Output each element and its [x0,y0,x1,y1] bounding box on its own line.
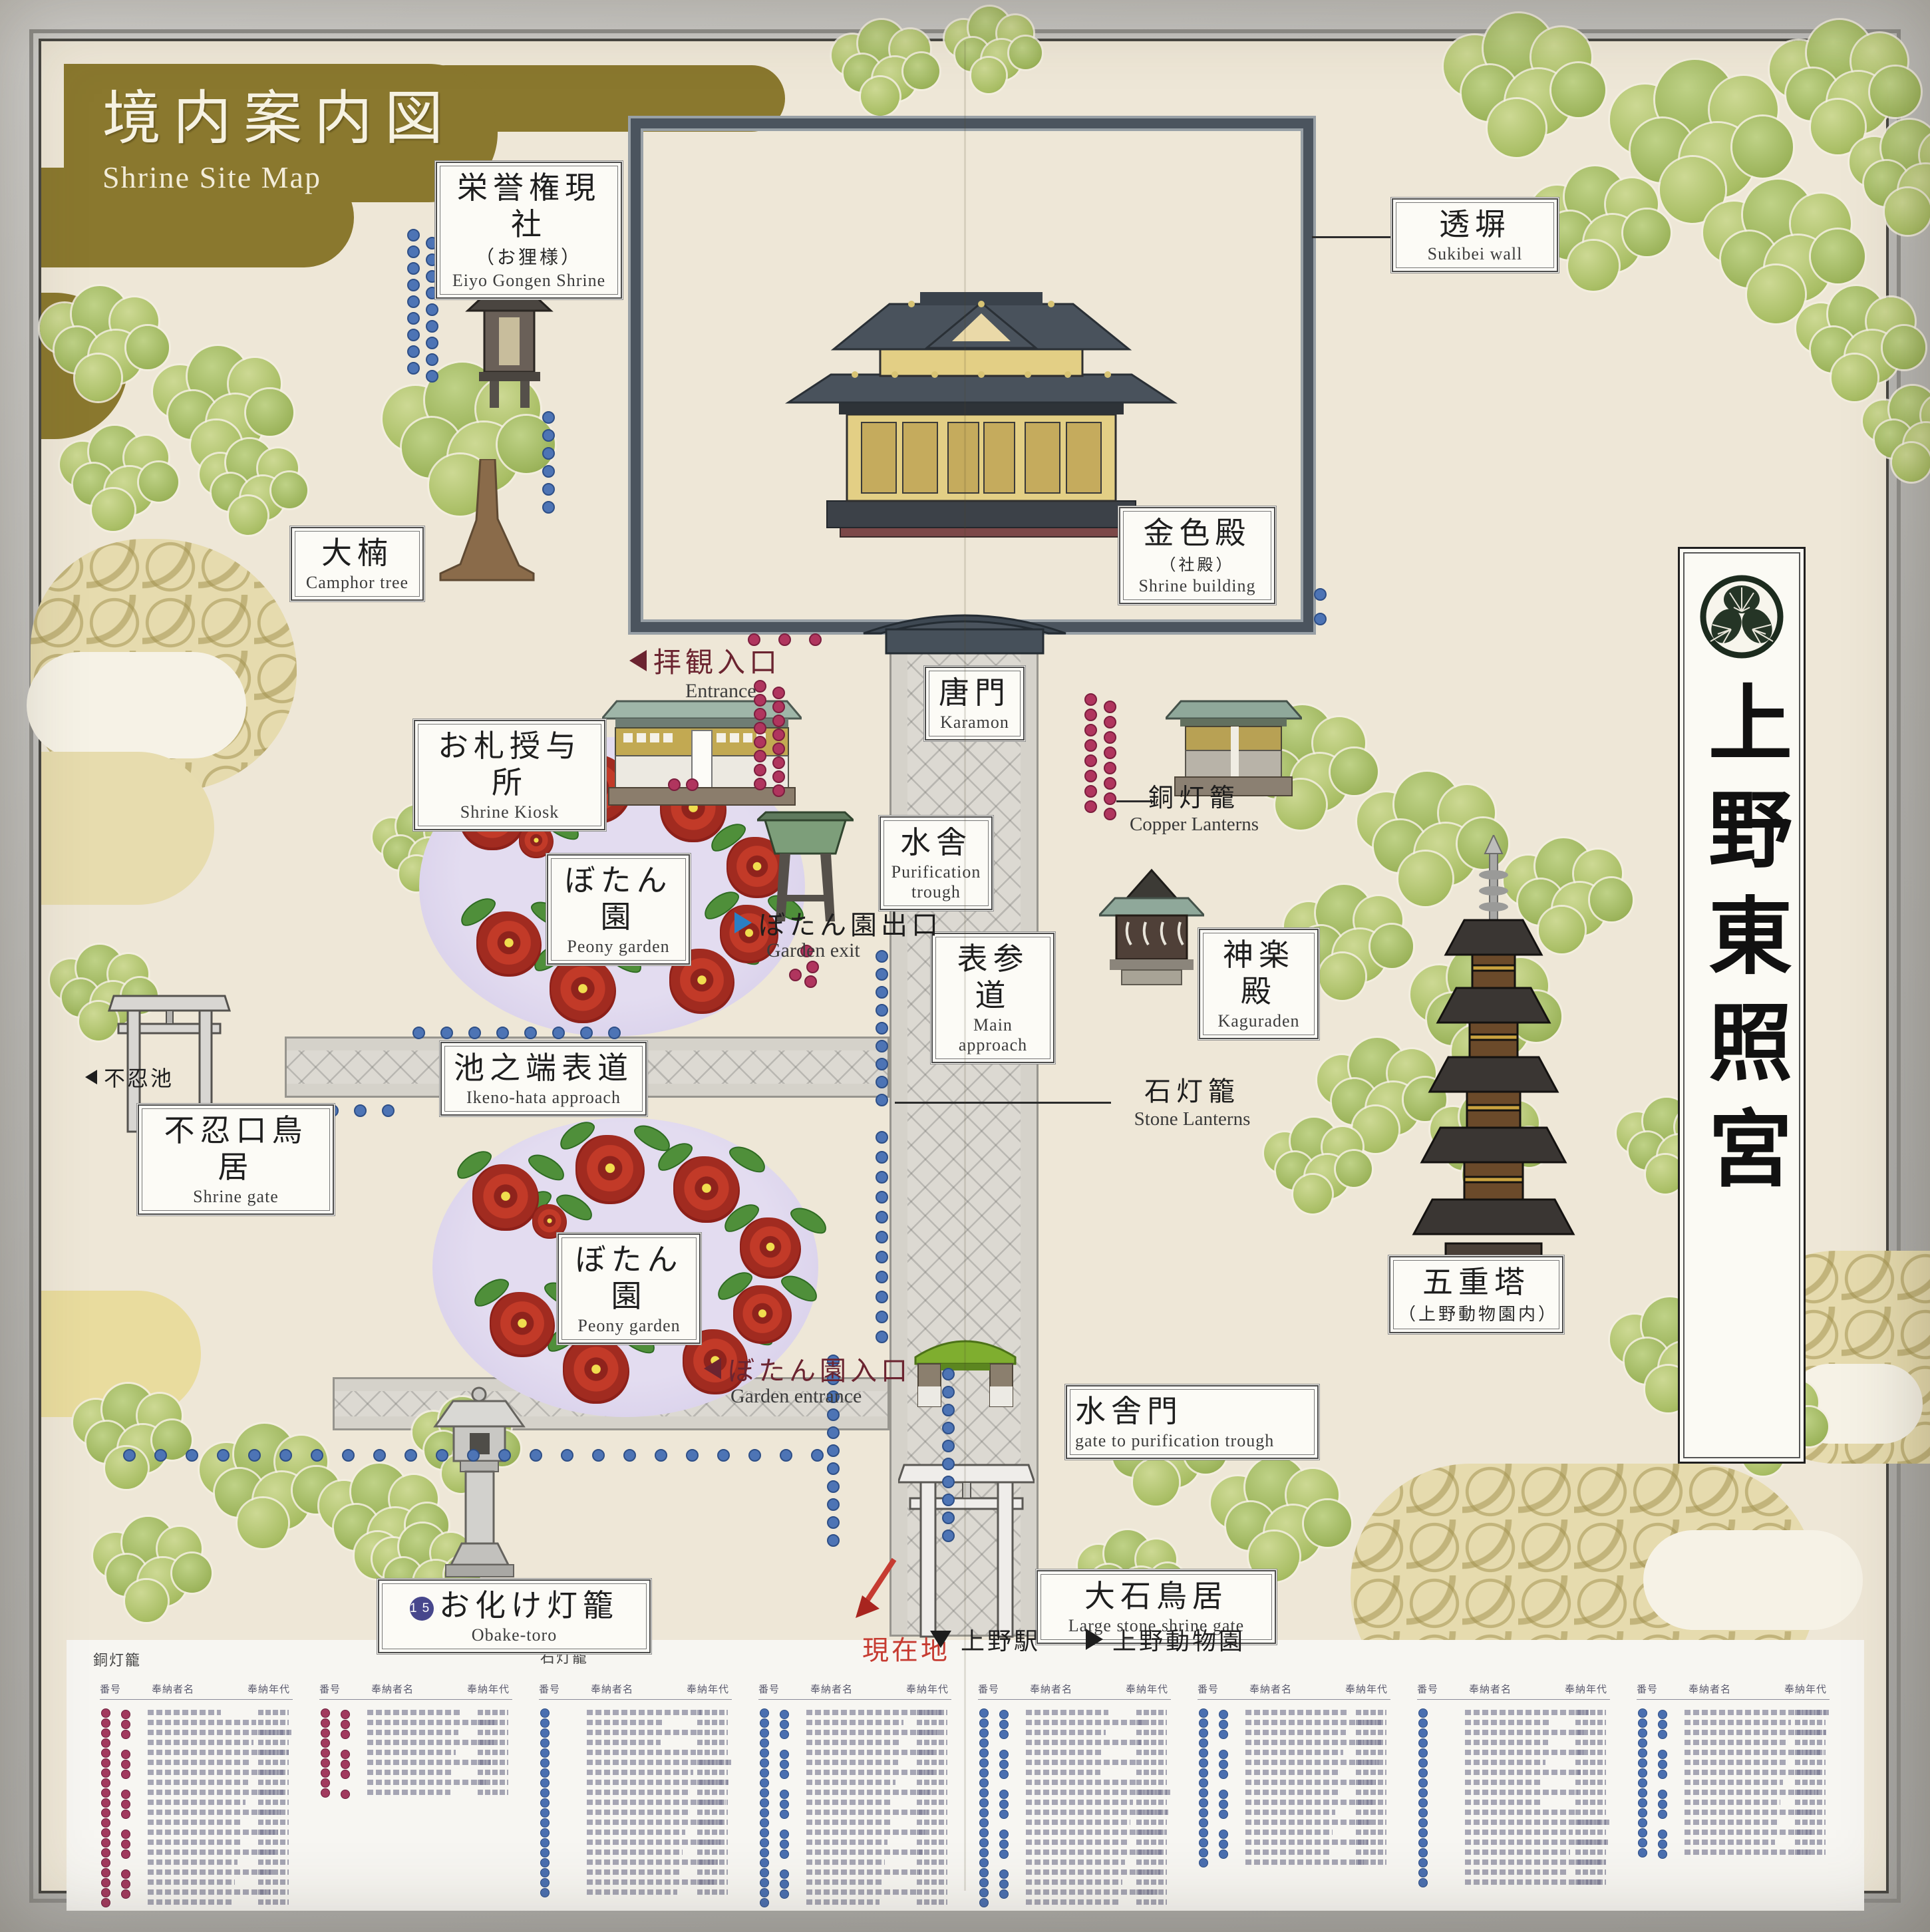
stone-lantern-dot [1314,588,1327,601]
stone-lantern-dot [876,1022,888,1035]
legend-dot [1199,1708,1208,1718]
map-title-banner: 境内案内図 Shrine Site Map [64,64,498,202]
legend-donor-name [806,1850,923,1855]
legend-donor-name [148,1780,248,1785]
tree-icon [1885,188,1930,235]
legend-dot [979,1708,989,1718]
copper-lantern-dot [668,778,681,791]
stone-lantern-dot [407,312,420,325]
legend-dot [1219,1790,1228,1799]
stone-lantern-dot [623,1449,636,1462]
legend-dot [101,1728,110,1738]
tree-icon [971,58,1006,92]
tree-icon [1811,230,1865,283]
legend-donor-name [1685,1840,1775,1845]
legend-donor-era [258,1889,289,1895]
legend-donor-era [697,1750,728,1755]
legend-dot [979,1838,989,1848]
legend-dot [1418,1858,1428,1867]
legend-dot [121,1710,130,1719]
legend-donor-era [917,1850,947,1855]
stone-lantern-dot [827,1534,840,1547]
legend-donor-era [478,1740,508,1745]
legend-donor-name [1245,1710,1349,1715]
legend-donor-era [1795,1770,1826,1775]
stone-lantern-dot [373,1449,386,1462]
stone-lantern-dot [876,1331,888,1343]
legend-donor-era [697,1730,728,1735]
garden-entrance-marker-en: Garden entrance [730,1385,862,1408]
legend-dot [1199,1748,1208,1758]
arrow-left-icon [629,650,647,671]
arrow-left-icon [704,1358,721,1379]
copper-lantern-dot [1084,770,1097,782]
stone-lantern-dot [407,262,420,275]
stone-lantern-dot [382,1104,395,1117]
legend-dot [999,1790,1009,1799]
legend-donor-era [697,1780,728,1785]
legend-dot [1658,1750,1667,1759]
legend-header-name: 奉納者名 [810,1682,853,1696]
legend-dot [121,1750,130,1759]
legend-donor-era [258,1810,289,1815]
stone-lantern-dot [426,337,438,349]
legend-dot [760,1708,769,1718]
legend-dot [540,1888,550,1897]
legend-donor-name [1465,1730,1586,1735]
legend-donor-name [587,1889,677,1895]
stone-lantern-dot [530,1449,542,1462]
copper-lantern-dot [1104,762,1116,774]
legend-header-no: 番号 [100,1682,121,1696]
legend-donor-name [1465,1710,1589,1715]
legend-donor-era [1575,1859,1606,1865]
label-trough: 水舎 Purification trough [880,816,993,910]
legend-donor-era [697,1830,728,1835]
tree-icon [126,326,170,369]
legend-donor-era [1136,1790,1167,1795]
legend-dot [999,1810,1009,1819]
legend-donor-name [806,1869,920,1875]
copper-lantern-dot [754,708,766,721]
legend-dot [999,1760,1009,1769]
legend-dot [1418,1798,1428,1808]
legend-donor-era [1575,1740,1606,1745]
label-kiosk: お札授与所 Shrine Kiosk [414,720,605,830]
legend-dot [760,1788,769,1798]
legend-dot [121,1869,130,1879]
copper-lantern-dot [1104,716,1116,728]
stone-lantern-dot [407,345,420,358]
legend-dot [999,1850,1009,1859]
legend-dot [1199,1778,1208,1788]
legend-donor-era [478,1780,508,1785]
stone-lantern-dot [942,1494,955,1506]
copper-lantern-dot [772,784,785,797]
legend-dot [1199,1818,1208,1828]
legend-donor-era [1795,1760,1826,1765]
tree-icon [125,1580,168,1623]
label-peony-upper: ぼたん園 Peony garden [547,854,690,965]
legend-dot [999,1710,1009,1719]
legend-dot [101,1748,110,1758]
legend-dot [780,1810,789,1819]
legend-donor-name [1026,1780,1136,1785]
legend-donor-era [1356,1850,1386,1855]
legend-dot [321,1788,330,1798]
legend-dot [979,1868,989,1877]
legend-dot [540,1768,550,1778]
legend-dot [1418,1748,1428,1758]
stone-lantern-dot [827,1480,840,1493]
legend-header-name: 奉納者名 [371,1682,414,1696]
legend-dot [999,1879,1009,1889]
stone-lantern-dot [876,1171,888,1184]
copper-lantern-dot [1084,724,1097,736]
legend-donor-name [1465,1869,1567,1875]
tree-icon [1623,210,1670,256]
legend-donor-name [1465,1810,1575,1815]
legend-header-no: 番号 [539,1682,560,1696]
legend-dot [540,1818,550,1828]
legend-dot [979,1768,989,1778]
legend-dot [101,1878,110,1887]
legend-donor-era [1575,1760,1606,1765]
legend-dot [1418,1758,1428,1768]
tree-icon [861,77,899,116]
legend-donor-era [258,1850,289,1855]
legend-dot [1638,1778,1647,1788]
stone-lantern-dot [686,1449,699,1462]
legend-donor-era [1575,1850,1606,1855]
legend-donor-name [1245,1810,1335,1815]
stone-lantern-dot [942,1386,955,1398]
legend-donor-era [1795,1850,1826,1855]
tree-icon [1133,1459,1180,1506]
label-camphor: 大楠 Camphor tree [291,527,424,601]
legend-dot [121,1830,130,1839]
stone-lantern-dot [186,1449,198,1462]
legend-header-no: 番号 [319,1682,341,1696]
camphor-tree-trunk [434,459,540,582]
legend-dot [321,1728,330,1738]
legend-donor-era [1575,1820,1606,1825]
legend-dot [341,1720,350,1729]
label-kaguraden: 神楽殿 Kaguraden [1199,929,1319,1039]
legend-dot [760,1748,769,1758]
legend-dot [1638,1828,1647,1838]
legend-donor-era [917,1869,947,1875]
legend-donor-era [1575,1790,1606,1795]
legend-donor-name [806,1820,890,1825]
legend-header-rule [1637,1699,1830,1700]
legend-dot [101,1868,110,1877]
copper-lantern-dot [1104,808,1116,820]
legend-donor-era [258,1780,289,1785]
legend-donor-era [697,1820,728,1825]
legend-dot [1658,1830,1667,1839]
stone-lantern-dot [552,1027,565,1039]
legend-donor-era [1795,1830,1826,1835]
legend-dot [540,1798,550,1808]
copper-lantern-dot [686,778,699,791]
legend-header-era: 奉納年代 [247,1682,290,1696]
legend-donor-name [1465,1790,1578,1795]
stone-lantern-dot [748,1449,761,1462]
legend-dot [999,1750,1009,1759]
legend-header-name: 奉納者名 [591,1682,633,1696]
legend-dot [1199,1848,1208,1857]
legend-donor-name [1245,1730,1346,1735]
legend-donor-era [1575,1810,1606,1815]
legend-dot [101,1888,110,1897]
stone-lantern-dot [524,1027,537,1039]
legend-dot [1219,1800,1228,1809]
legend-donor-name [367,1730,458,1735]
tree-icon [75,355,122,401]
legend-dot [1658,1810,1667,1819]
legend-donor-name [1465,1830,1573,1835]
legend-dot [540,1778,550,1788]
tree-icon [92,489,134,532]
legend-header-no: 番号 [978,1682,999,1696]
stone-lantern-dot [827,1462,840,1475]
legend-dot [101,1738,110,1748]
legend-donor-era [258,1840,289,1845]
stone-lantern-dot [592,1449,605,1462]
legend-dot [101,1768,110,1778]
legend-dot [780,1730,789,1739]
legend-donor-era [258,1740,289,1745]
legend-donor-era [917,1889,947,1895]
legend-donor-era [1795,1750,1826,1755]
legend-donor-name [367,1740,494,1745]
legend-donor-era [1356,1820,1386,1825]
tree-icon [1331,748,1377,795]
legend-donor-era [917,1800,947,1805]
stone-lantern-dot [655,1449,667,1462]
stone-lantern-dot [876,1291,888,1303]
legend-donor-era [917,1899,947,1905]
legend-donor-name [1026,1750,1103,1755]
legend-dot [1199,1738,1208,1748]
stone-lantern-dot [279,1449,292,1462]
legend-dot [760,1798,769,1808]
stone-lantern-dot [876,1231,888,1243]
tree-icon [1568,241,1618,291]
stone-lantern-dot [407,362,420,375]
copper-lantern-dot [754,750,766,762]
tree-icon [1370,925,1414,968]
legend-dot [1219,1830,1228,1839]
copper-lantern-dot [754,764,766,776]
copper-lantern-dot [754,736,766,748]
tree-icon [1293,1175,1332,1213]
peony-flower-icon [733,1285,792,1344]
shrine-kiosk-icon [602,691,802,816]
legend-donor-name [1465,1740,1548,1745]
legend-dot [1638,1738,1647,1748]
legend-donor-era [917,1830,947,1835]
map-title-jp: 境内案内図 [102,71,498,156]
legend-donor-era [478,1730,508,1735]
legend-donor-name [1026,1899,1120,1905]
legend-dot [1658,1760,1667,1769]
stone-lantern-dot [407,295,420,308]
legend-dot [1638,1718,1647,1728]
legend-dot [979,1798,989,1808]
legend-dot [780,1710,789,1719]
legend-dot [760,1868,769,1877]
legend-dot [780,1720,789,1729]
legend-dot [1199,1768,1208,1778]
stone-lantern-dot [542,465,555,478]
legend-dot [101,1708,110,1718]
legend-donor-name [806,1800,893,1805]
copper-lantern-dot [754,778,766,790]
legend-donor-era [917,1730,947,1735]
legend-dot [780,1800,789,1809]
legend-dot [999,1720,1009,1729]
legend-dot [979,1788,989,1798]
legend-donor-era [697,1859,728,1865]
stone-lantern-dot [876,1311,888,1323]
shrine-site-map-sign: 境内案内図 Shrine Site Map [0,0,1930,1932]
legend-donor-name [1026,1820,1130,1825]
legend-dot [1219,1730,1228,1739]
copper-lantern-dot [1104,701,1116,713]
legend-donor-name [1245,1750,1343,1755]
stone-lantern-dot [580,1027,593,1039]
stone-lantern-dot [354,1104,367,1117]
legend-donor-era [1356,1790,1386,1795]
stone-lantern-dot [876,1131,888,1144]
legend-donor-era [258,1760,289,1765]
garden-entrance-marker: ぼたん園入口 [704,1349,911,1388]
legend-dot [321,1718,330,1728]
legend-dot [999,1840,1009,1849]
legend-header-no: 番号 [1417,1682,1438,1696]
legend-dot [540,1788,550,1798]
legend-dot [1638,1838,1647,1848]
stone-lantern-dot [942,1458,955,1470]
label-ikenohata: 池之端表道 Ikeno-hata approach [440,1042,647,1116]
large-stone-torii-icon [898,1456,1035,1639]
legend-donor-name [148,1760,251,1765]
legend-dot [1638,1808,1647,1818]
legend-donor-name [148,1720,256,1725]
legend-dot [540,1708,550,1718]
legend-donor-era [478,1760,508,1765]
legend-donor-era [1795,1710,1826,1715]
legend-dot [121,1770,130,1779]
legend-dot [101,1848,110,1857]
legend-dot [979,1858,989,1867]
legend-dot [760,1898,769,1907]
legend-dot [1658,1800,1667,1809]
legend-donor-name [1465,1850,1570,1855]
legend-donor-era [697,1810,728,1815]
legend-dot [1219,1850,1228,1859]
legend-donor-name [1026,1760,1138,1765]
legend-donor-era [1575,1750,1606,1755]
legend-donor-era [1136,1750,1167,1755]
legend-donor-era [1356,1810,1386,1815]
legend-dot [1658,1770,1667,1779]
legend-dot [321,1738,330,1748]
stone-lantern-dot [811,1449,824,1462]
legend-donor-name [1465,1760,1545,1765]
legend-donor-era [258,1859,289,1865]
legend-donor-name [1685,1800,1780,1805]
legend-dot [101,1778,110,1788]
stone-lantern-dot [942,1368,955,1380]
stone-lantern-dot [407,329,420,341]
arrow-left-icon [85,1070,97,1084]
legend-dot [101,1718,110,1728]
stone-lantern-dot [407,279,420,291]
legend-donor-era [697,1850,728,1855]
tree-icon [1832,355,1878,401]
legend-dot [760,1858,769,1867]
legend-dot [121,1879,130,1889]
legend-dot [780,1850,789,1859]
legend-header-rule [539,1699,732,1700]
legend-donor-name [367,1760,491,1765]
legend-donor-era [258,1730,289,1735]
tree-icon [1551,63,1605,117]
legend-donor-era [258,1720,289,1725]
legend-dot [101,1808,110,1818]
legend-donor-era [1136,1869,1167,1875]
legend-donor-era [1136,1800,1167,1805]
stone-lantern-dot [876,1251,888,1263]
legend-dot [1418,1848,1428,1857]
legend-dot [979,1848,989,1857]
legend-dot [1638,1768,1647,1778]
legend-dot [341,1710,350,1719]
legend-dot [121,1760,130,1769]
stone-lantern-dot [217,1449,230,1462]
shrine-building-illustration [762,203,1201,549]
legend-donor-name [1685,1740,1788,1745]
stone-lantern-dot [542,483,555,496]
legend-dot [101,1898,110,1907]
legend-donor-era [1356,1750,1386,1755]
legend-donor-era [697,1770,728,1775]
legend-donor-era [697,1760,728,1765]
legend-donor-era [917,1859,947,1865]
stone-lantern-dot [942,1529,955,1542]
legend-header-name: 奉納者名 [1249,1682,1292,1696]
legend-donor-era [1136,1760,1167,1765]
legend-donor-era [258,1800,289,1805]
legend-dot [979,1728,989,1738]
legend-donor-era [1795,1720,1826,1725]
stone-lantern-dot [876,1151,888,1164]
stone-lantern-dot [780,1449,792,1462]
legend-dot [540,1808,550,1818]
copper-lantern-dot [809,633,822,646]
legend-dot [780,1750,789,1759]
legend-donor-name [1245,1820,1370,1825]
copper-lantern-dot [772,742,785,755]
legend-dot [540,1728,550,1738]
legend-donor-era [1136,1859,1167,1865]
legend-dot [780,1760,789,1769]
legend-dot [1638,1758,1647,1768]
legend-donor-name [806,1879,882,1885]
